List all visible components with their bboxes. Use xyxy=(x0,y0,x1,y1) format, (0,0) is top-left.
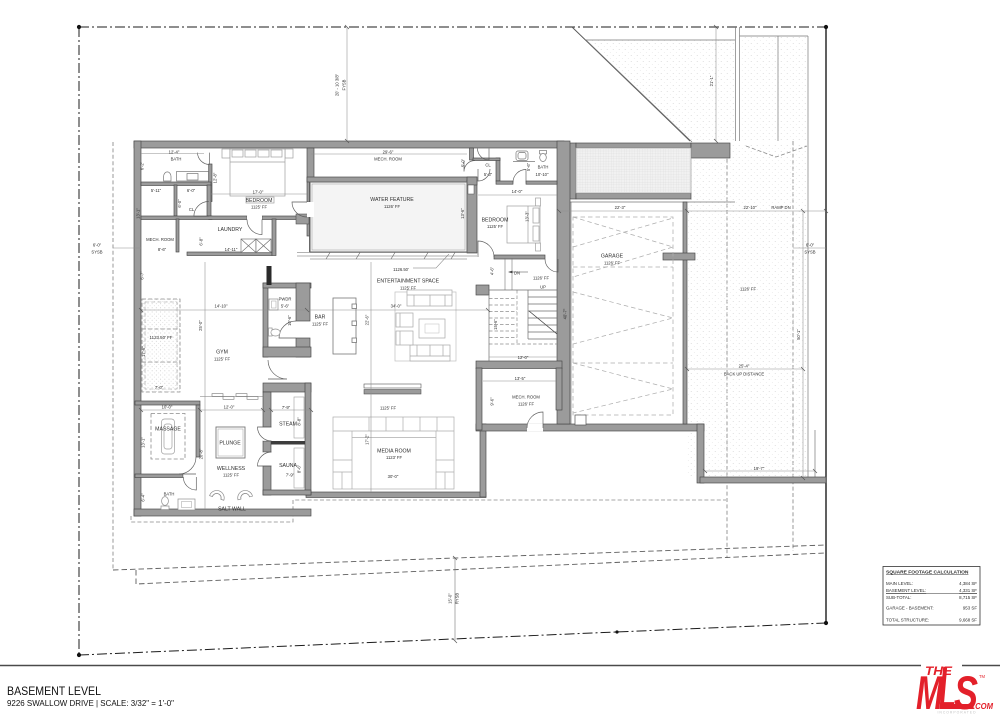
svg-text:MASSAGE: MASSAGE xyxy=(155,427,181,433)
svg-text:TOTAL STRUCTURE:: TOTAL STRUCTURE: xyxy=(886,618,929,623)
svg-text:6'-2": 6'-2" xyxy=(140,161,145,170)
svg-text:13'-1": 13'-1" xyxy=(136,208,141,219)
svg-text:1125' FF: 1125' FF xyxy=(214,357,231,362)
svg-text:22'-6": 22'-6" xyxy=(365,314,370,325)
svg-text:INCORPORATED: INCORPORATED xyxy=(937,711,976,715)
svg-text:1125' FF: 1125' FF xyxy=(380,406,397,411)
svg-text:9'-6": 9'-6" xyxy=(490,397,495,406)
svg-text:GARAGE: GARAGE xyxy=(601,254,624,260)
svg-text:7'-9": 7'-9" xyxy=(286,473,295,478)
svg-text:12'-4": 12'-4" xyxy=(169,150,180,155)
svg-text:22'-10": 22'-10" xyxy=(744,205,758,210)
svg-text:MAIN LEVEL:: MAIN LEVEL: xyxy=(886,581,913,586)
svg-text:1126' FF: 1126' FF xyxy=(533,276,550,281)
svg-text:13'-1": 13'-1" xyxy=(141,437,146,448)
svg-text:5'-6": 5'-6" xyxy=(526,162,531,171)
svg-text:14'-0": 14'-0" xyxy=(512,189,523,194)
svg-text:LAUNDRY: LAUNDRY xyxy=(218,227,243,233)
svg-text:PWDR: PWDR xyxy=(279,297,292,302)
svg-text:CL: CL xyxy=(485,163,491,168)
svg-text:7'-0": 7'-0" xyxy=(155,385,164,390)
svg-text:21'-1": 21'-1" xyxy=(709,75,714,86)
svg-text:1125' FF: 1125' FF xyxy=(251,205,268,210)
svg-text:PLUNGE: PLUNGE xyxy=(219,441,241,447)
svg-text:MECH. ROOM: MECH. ROOM xyxy=(512,395,540,400)
svg-text:MEDIA ROOM: MEDIA ROOM xyxy=(377,449,411,455)
svg-text:13'-6": 13'-6" xyxy=(460,208,465,219)
svg-text:1125' FF: 1125' FF xyxy=(487,224,504,229)
svg-text:12'-0": 12'-0" xyxy=(224,405,235,410)
svg-text:30'-0": 30'-0" xyxy=(388,474,399,479)
svg-text:12'-0": 12'-0" xyxy=(518,355,529,360)
svg-text:TM: TM xyxy=(979,674,986,679)
svg-text:4,384 SF: 4,384 SF xyxy=(959,581,977,586)
svg-text:BAR: BAR xyxy=(315,315,326,321)
svg-text:9,668 SF: 9,668 SF xyxy=(959,618,977,623)
svg-text:12'-8": 12'-8" xyxy=(213,172,218,183)
svg-text:BATH: BATH xyxy=(164,492,175,497)
svg-text:BACK UP DISTANCE: BACK UP DISTANCE xyxy=(724,372,765,377)
svg-text:UP: UP xyxy=(540,285,546,290)
svg-text:BATH: BATH xyxy=(171,157,182,162)
svg-text:10'-0": 10'-0" xyxy=(162,405,173,410)
svg-text:MECH. ROOM: MECH. ROOM xyxy=(374,157,402,162)
svg-text:34'-0": 34'-0" xyxy=(391,304,402,309)
svg-text:19'-7": 19'-7" xyxy=(754,466,765,471)
svg-text:BEDROOM: BEDROOM xyxy=(482,218,509,224)
svg-text:17'-6": 17'-6" xyxy=(141,346,146,357)
svg-text:17'-0": 17'-0" xyxy=(253,190,264,195)
svg-text:6'-8": 6'-8" xyxy=(199,237,204,246)
svg-text:40'-7": 40'-7" xyxy=(563,308,568,319)
svg-text:5'-11": 5'-11" xyxy=(151,188,162,193)
svg-text:14'-11": 14'-11" xyxy=(225,247,238,252)
svg-text:4,331 SF: 4,331 SF xyxy=(959,588,977,593)
svg-text:20' - 10 3/8": 20' - 10 3/8" xyxy=(335,73,340,96)
svg-text:25'-4": 25'-4" xyxy=(739,364,750,369)
svg-text:1125' FF: 1125' FF xyxy=(223,473,240,478)
svg-text:FYSB: FYSB xyxy=(342,79,347,90)
svg-text:GYM: GYM xyxy=(216,350,228,356)
svg-text:17'-2": 17'-2" xyxy=(365,434,370,445)
svg-text:8'-8": 8'-8" xyxy=(297,417,302,426)
svg-text:1123.50' FF: 1123.50' FF xyxy=(150,335,173,340)
svg-text:15'-6": 15'-6" xyxy=(493,319,498,330)
svg-text:6'-0": 6'-0" xyxy=(187,188,196,193)
svg-text:1126' FF: 1126' FF xyxy=(740,287,757,292)
svg-text:BEDROOM: BEDROOM xyxy=(246,198,273,204)
svg-text:50'-1": 50'-1" xyxy=(796,329,801,340)
svg-text:6'-7": 6'-7" xyxy=(140,271,145,280)
svg-text:5'-6": 5'-6" xyxy=(281,304,290,309)
svg-text:25'-0": 25'-0" xyxy=(198,320,203,331)
svg-text:RYSB: RYSB xyxy=(455,593,460,605)
svg-text:20'-8": 20'-8" xyxy=(199,448,204,459)
svg-text:GARAGE - BASEMENT:: GARAGE - BASEMENT: xyxy=(886,606,934,611)
svg-text:WELLNESS: WELLNESS xyxy=(217,466,246,472)
svg-text:SYSB: SYSB xyxy=(91,250,102,255)
svg-text:7'-9": 7'-9" xyxy=(282,405,291,410)
svg-text:.COM: .COM xyxy=(973,701,994,711)
svg-text:15'-0": 15'-0" xyxy=(448,593,453,604)
svg-text:BATH: BATH xyxy=(538,165,549,170)
svg-text:8'-6": 8'-6" xyxy=(158,247,167,252)
svg-text:10'-10": 10'-10" xyxy=(536,172,550,177)
svg-text:6'-0": 6'-0" xyxy=(806,243,815,248)
svg-text:ENTERTAINMENT SPACE: ENTERTAINMENT SPACE xyxy=(377,279,440,285)
svg-text:1126.50': 1126.50' xyxy=(393,267,409,272)
svg-text:SAUNA: SAUNA xyxy=(279,463,297,469)
svg-text:5'-0": 5'-0" xyxy=(461,158,466,167)
svg-text:MECH. ROOM: MECH. ROOM xyxy=(146,237,174,242)
svg-text:8,715 SF: 8,715 SF xyxy=(959,595,977,600)
svg-text:22'-3": 22'-3" xyxy=(615,205,626,210)
svg-text:1126' FF: 1126' FF xyxy=(384,204,401,209)
svg-text:14'-10": 14'-10" xyxy=(215,304,229,309)
svg-text:BASEMENT LEVEL: BASEMENT LEVEL xyxy=(7,684,101,698)
svg-text:SALT WALL: SALT WALL xyxy=(218,507,246,513)
svg-text:13'-5": 13'-5" xyxy=(515,376,526,381)
svg-text:RAMP DN: RAMP DN xyxy=(771,205,790,210)
svg-text:STEAM: STEAM xyxy=(279,422,297,428)
svg-text:BASEMENT LEVEL:: BASEMENT LEVEL: xyxy=(886,588,926,593)
svg-text:SYSB: SYSB xyxy=(804,250,815,255)
svg-text:1125' FF: 1125' FF xyxy=(400,286,417,291)
svg-text:6'-4": 6'-4" xyxy=(141,493,146,502)
svg-text:DN: DN xyxy=(514,271,520,276)
svg-text:1126' FF: 1126' FF xyxy=(518,402,535,407)
svg-text:5'-3": 5'-3" xyxy=(484,172,493,177)
svg-text:1123' FF: 1123' FF xyxy=(386,455,403,460)
svg-text:1126' FF: 1126' FF xyxy=(604,261,621,266)
svg-text:10'-6": 10'-6" xyxy=(287,315,292,326)
svg-text:WATER FEATURE: WATER FEATURE xyxy=(370,197,414,203)
svg-text:9226 SWALLOW DRIVE | SCALE: 3/: 9226 SWALLOW DRIVE | SCALE: 3/32" = 1'-0… xyxy=(7,699,174,708)
svg-text:1125' FF: 1125' FF xyxy=(312,322,329,327)
svg-text:13'-3": 13'-3" xyxy=(525,211,530,222)
svg-text:SQUARE FOOTAGE CALCULATION: SQUARE FOOTAGE CALCULATION xyxy=(886,570,969,576)
svg-text:29'-6": 29'-6" xyxy=(383,150,394,155)
svg-text:6'-0": 6'-0" xyxy=(93,243,102,248)
svg-text:SUB-TOTAL:: SUB-TOTAL: xyxy=(886,595,911,600)
svg-text:CL: CL xyxy=(189,207,195,212)
svg-text:8'-6": 8'-6" xyxy=(297,464,302,473)
svg-text:4'-6": 4'-6" xyxy=(490,266,495,275)
svg-text:6'-0": 6'-0" xyxy=(177,199,182,208)
svg-text:953 SF: 953 SF xyxy=(963,606,977,611)
